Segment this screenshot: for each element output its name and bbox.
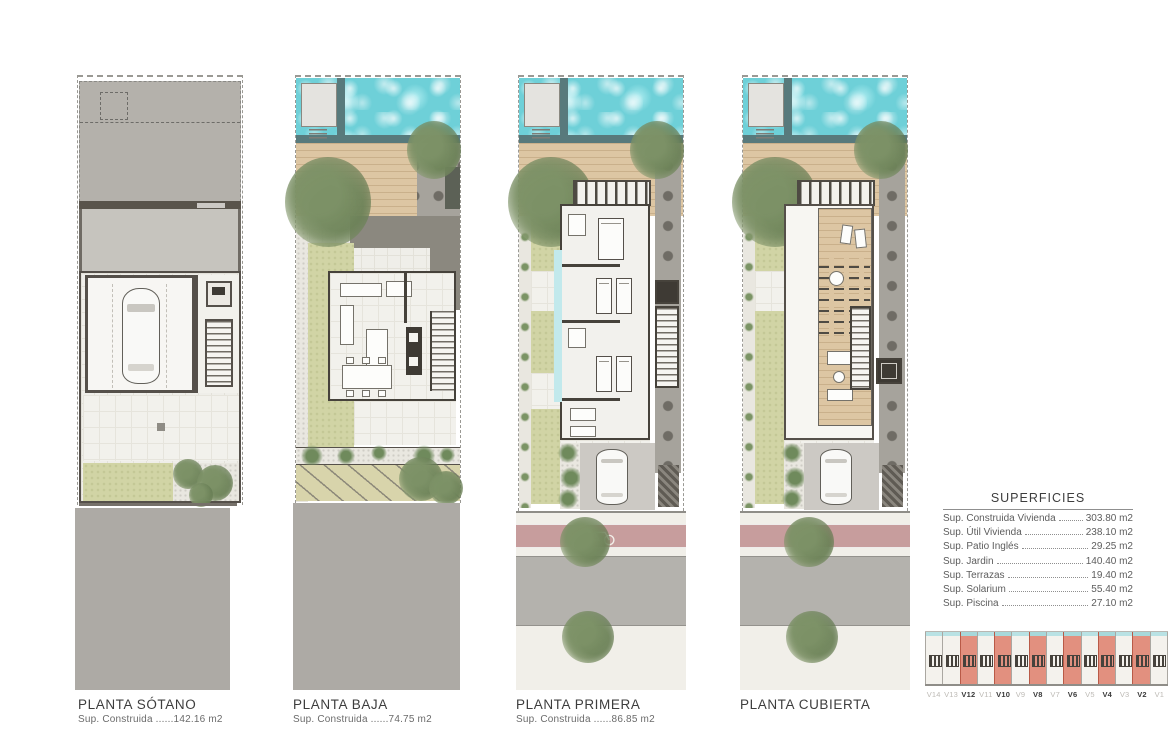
pool-platform — [524, 83, 560, 127]
floor-plan-cubierta — [740, 75, 910, 690]
tree-icon — [630, 121, 684, 179]
wall-opening — [197, 203, 225, 208]
kitchen-counter — [406, 327, 422, 375]
plan-subtitle-sotano: Sup. Construida ......142.16 m2 — [78, 714, 223, 725]
garden-paving — [755, 271, 785, 311]
superficies-label: Sup. Jardin — [943, 556, 994, 567]
keyplan-unit-v2 — [1132, 632, 1149, 684]
roof-terrace — [784, 204, 874, 440]
rear-patio — [354, 401, 456, 445]
unit-pool — [926, 632, 942, 636]
plot-edge — [79, 503, 237, 506]
keyplan-unit-v12 — [960, 632, 977, 684]
staircase — [205, 319, 233, 387]
keyplan-labels: V14V13V12V11V10V9V8V7V6V5V4V3V2V1 — [925, 690, 1168, 699]
garden-lawn — [755, 216, 785, 504]
parking-line — [112, 284, 113, 388]
dotted-leader — [1059, 520, 1083, 521]
superficies-label: Sup. Piscina — [943, 598, 999, 609]
keyplan-unit-v8 — [1029, 632, 1046, 684]
bathroom-fixture — [568, 214, 586, 236]
unit-pool — [1116, 632, 1132, 636]
unit-core — [1153, 655, 1166, 667]
planter-box — [882, 465, 903, 507]
unit-pool — [978, 632, 994, 636]
superficies-value: 19.40 m2 — [1091, 570, 1133, 581]
gravel-border — [743, 216, 755, 508]
english-patio — [83, 395, 239, 461]
superficies-row: Sup. Construida Vivienda303.80 m2 — [943, 513, 1133, 527]
pool-steps — [532, 129, 550, 141]
keyplan-label-v7: V7 — [1047, 690, 1064, 699]
table — [829, 271, 844, 286]
floor-plan-sotano — [75, 75, 245, 690]
keyplan-strip — [925, 631, 1168, 686]
basement-floor — [79, 271, 241, 503]
staircase — [850, 306, 871, 390]
interior-wall — [562, 398, 620, 401]
plan-title-sotano: PLANTA SÓTANO — [78, 697, 196, 712]
keyplan-unit-v6 — [1063, 632, 1080, 684]
car-icon — [820, 449, 852, 505]
unit-core — [998, 655, 1011, 667]
superficies-row: Sup. Terrazas19.40 m2 — [943, 570, 1133, 584]
unit-core — [1084, 655, 1097, 667]
bed — [616, 356, 632, 392]
chair — [362, 357, 370, 364]
tree-icon — [784, 517, 834, 567]
superficies-label: Sup. Patio Inglés — [943, 541, 1019, 552]
tree-icon — [285, 157, 371, 247]
equipment — [212, 287, 225, 295]
interior-wall — [404, 273, 407, 323]
appliance — [409, 333, 418, 342]
unit-core — [946, 655, 959, 667]
table — [833, 371, 845, 383]
skylight-outline — [100, 92, 128, 120]
keyplan-label-v13: V13 — [942, 690, 959, 699]
gravel-border — [519, 216, 531, 508]
keyplan-unit-v9 — [1011, 632, 1028, 684]
plot-boundary — [77, 75, 78, 505]
floor-plan-baja — [293, 75, 463, 690]
sun-lounger — [854, 228, 867, 248]
unit-core — [1119, 655, 1132, 667]
superficies-title: SUPERFICIES — [943, 491, 1133, 510]
pool-edge — [784, 78, 792, 138]
keyplan-unit-v10 — [994, 632, 1011, 684]
unit-pool — [1030, 632, 1046, 636]
unit-pool — [1151, 632, 1167, 636]
patio-lawn — [83, 463, 173, 501]
unit-pool — [995, 632, 1011, 636]
unit-core — [1136, 655, 1149, 667]
desk — [340, 283, 382, 297]
pool-platform — [301, 83, 337, 127]
shrub — [560, 467, 582, 489]
superficies-value: 140.40 m2 — [1086, 556, 1133, 567]
bed — [616, 278, 632, 314]
floor-plan-primera — [516, 75, 686, 690]
pergola-slats — [573, 180, 651, 206]
superficies-value: 29.25 m2 — [1091, 541, 1133, 552]
unit-core — [1032, 655, 1045, 667]
superficies-value: 55.40 m2 — [1091, 584, 1133, 595]
street — [75, 508, 230, 690]
keyplan-unit-v3 — [1115, 632, 1132, 684]
chair — [346, 390, 354, 397]
keyplan-label-v6: V6 — [1064, 690, 1081, 699]
unit-pool — [1047, 632, 1063, 636]
interior-wall — [562, 320, 620, 323]
keyplan-label-v3: V3 — [1116, 690, 1133, 699]
dining-table — [342, 365, 392, 389]
parking-line — [166, 284, 167, 388]
glazing-strip — [554, 250, 562, 402]
underground-garden-area — [79, 81, 241, 202]
unit-core — [1067, 655, 1080, 667]
bedroom-floor — [560, 204, 650, 440]
basement-service-wing — [195, 275, 239, 393]
chair — [378, 357, 386, 364]
interior-wall — [562, 264, 620, 267]
unit-core — [929, 655, 942, 667]
planter-box — [658, 465, 679, 507]
dotted-leader — [1025, 534, 1083, 535]
elevator-shaft — [876, 358, 902, 384]
keyplan-label-v4: V4 — [1099, 690, 1116, 699]
unit-pool — [1064, 632, 1080, 636]
shrub — [784, 467, 806, 489]
bed — [598, 218, 624, 260]
unit-pool — [1082, 632, 1098, 636]
unit-pool — [943, 632, 959, 636]
living-floor — [328, 271, 456, 401]
dotted-leader — [1008, 577, 1089, 578]
superficies-value: 238.10 m2 — [1086, 527, 1133, 538]
dotted-leader — [1022, 548, 1089, 549]
superficies-row: Sup. Piscina27.10 m2 — [943, 598, 1133, 612]
architectural-sheet: PLANTA SÓTANO Sup. Construida ......142.… — [0, 0, 1170, 736]
keyplan-label-v11: V11 — [977, 690, 994, 699]
sofa — [340, 305, 354, 345]
unit-core — [1015, 655, 1028, 667]
superficies-label: Sup. Útil Vivienda — [943, 527, 1022, 538]
shrub — [782, 489, 802, 509]
chair — [378, 390, 386, 397]
unit-core — [980, 655, 993, 667]
retaining-wall — [79, 201, 241, 209]
superficies-row: Sup. Solarium55.40 m2 — [943, 584, 1133, 598]
tree-icon — [560, 517, 610, 567]
pool-edge — [560, 78, 568, 138]
appliance — [409, 357, 418, 366]
keyplan-label-v10: V10 — [994, 690, 1011, 699]
outdoor-sofa — [827, 389, 853, 401]
plan-title-baja: PLANTA BAJA — [293, 697, 388, 712]
sofa — [570, 408, 596, 421]
tree-icon — [407, 121, 461, 179]
bed — [596, 356, 612, 392]
superficies-label: Sup. Construida Vivienda — [943, 513, 1056, 524]
unit-core — [963, 655, 976, 667]
keyplan-label-v12: V12 — [960, 690, 977, 699]
superficies-label: Sup. Solarium — [943, 584, 1006, 595]
shrub — [301, 445, 323, 467]
shrub — [782, 443, 802, 463]
unit-pool — [1099, 632, 1115, 636]
chair — [362, 390, 370, 397]
superficies-row: Sup. Patio Inglés29.25 m2 — [943, 541, 1133, 555]
keyplan-unit-v13 — [942, 632, 959, 684]
dotted-leader — [997, 563, 1083, 564]
bed — [596, 278, 612, 314]
tree-icon — [786, 611, 838, 663]
shrub — [558, 489, 578, 509]
keyplan-label-v2: V2 — [1133, 690, 1150, 699]
sun-lounger — [840, 224, 854, 244]
staircase — [655, 306, 679, 388]
pool-steps — [309, 129, 327, 141]
storage-room — [206, 281, 232, 307]
superficies-row: Sup. Jardin140.40 m2 — [943, 556, 1133, 570]
unit-core — [1050, 655, 1063, 667]
plot-boundary — [907, 75, 908, 511]
plot-boundary — [683, 75, 684, 511]
keyplan-unit-v5 — [1081, 632, 1098, 684]
elevator-cab — [881, 363, 897, 379]
plan-subtitle-baja: Sup. Construida ......74.75 m2 — [293, 714, 432, 725]
sofa — [570, 426, 596, 437]
unit-pool — [1012, 632, 1028, 636]
keyplan-unit-v14 — [925, 632, 942, 684]
superficies-label: Sup. Terrazas — [943, 570, 1005, 581]
unit-pool — [961, 632, 977, 636]
staircase — [430, 311, 454, 391]
unit-pool — [1133, 632, 1149, 636]
keyplan-unit-v11 — [977, 632, 994, 684]
plan-title-cubierta: PLANTA CUBIERTA — [740, 697, 871, 712]
pool-steps — [756, 129, 774, 141]
keyplan-label-v9: V9 — [1012, 690, 1029, 699]
keyplan-label-v14: V14 — [925, 690, 942, 699]
superficies-table: SUPERFICIES Sup. Construida Vivienda303.… — [943, 491, 1133, 612]
car-icon — [596, 449, 628, 505]
shrub — [439, 447, 455, 463]
projection-line — [80, 122, 240, 123]
dotted-leader — [1009, 591, 1088, 592]
superficies-row: Sup. Útil Vivienda238.10 m2 — [943, 527, 1133, 541]
tree-icon — [429, 471, 463, 505]
superficies-value: 27.10 m2 — [1091, 598, 1133, 609]
garage-room — [85, 275, 195, 393]
keyplan-unit-v1 — [1150, 632, 1168, 684]
floor-drain — [157, 423, 165, 431]
shrub — [337, 447, 355, 465]
keyplan-label-v8: V8 — [1029, 690, 1046, 699]
sofa — [386, 281, 412, 297]
shrub — [558, 443, 578, 463]
pool-platform — [748, 83, 784, 127]
side-path — [879, 143, 905, 473]
keyplan-label-v5: V5 — [1081, 690, 1098, 699]
plan-title-primera: PLANTA PRIMERA — [516, 697, 640, 712]
site-key-plan: V14V13V12V11V10V9V8V7V6V5V4V3V2V1 — [925, 631, 1168, 699]
tree-icon — [562, 611, 614, 663]
bathroom-fixture — [568, 328, 586, 348]
superficies-rows: Sup. Construida Vivienda303.80 m2Sup. Út… — [943, 513, 1133, 612]
street — [293, 503, 460, 690]
plan-subtitle-primera: Sup. Construida ......86.85 m2 — [516, 714, 655, 725]
keyplan-unit-v4 — [1098, 632, 1115, 684]
tree-icon — [854, 121, 908, 179]
keyplan-label-v1: V1 — [1151, 690, 1168, 699]
plot-boundary — [460, 75, 461, 503]
plot-boundary — [242, 75, 243, 505]
dotted-leader — [1002, 605, 1089, 606]
superficies-value: 303.80 m2 — [1086, 513, 1133, 524]
ramp-area — [79, 209, 241, 271]
unit-core — [1101, 655, 1114, 667]
shrub — [371, 445, 387, 461]
car-icon — [122, 288, 160, 384]
elevator-shaft — [655, 280, 679, 304]
keyplan-unit-v7 — [1046, 632, 1063, 684]
chair — [346, 357, 354, 364]
pool-edge — [337, 78, 345, 138]
pergola-slats — [797, 180, 875, 206]
